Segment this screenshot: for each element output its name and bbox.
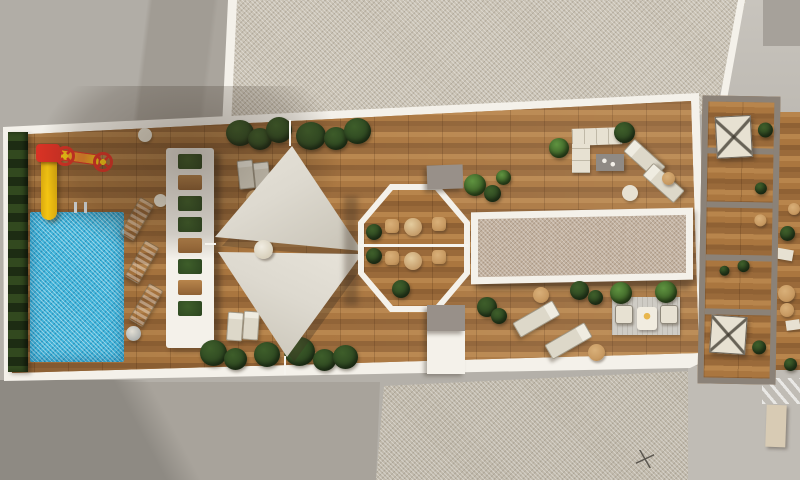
gazebo-chair-4 xyxy=(432,250,446,264)
planter-above-gazebo xyxy=(427,164,464,189)
umbrella-bottom xyxy=(709,315,748,355)
building-topright-block xyxy=(763,0,800,46)
gazebo-beam xyxy=(360,244,468,247)
pouf-upper-deck xyxy=(138,128,152,142)
sofa-l-side xyxy=(572,144,590,173)
roof-topleft-smooth xyxy=(0,0,238,132)
neighbor-chair xyxy=(788,203,800,215)
gazebo-table-1 xyxy=(404,218,422,236)
private-plant-5 xyxy=(752,340,766,354)
private-chair xyxy=(754,214,766,226)
gazebo-plant-2 xyxy=(366,248,382,264)
gazebo-chair-3 xyxy=(432,217,446,231)
private-plant-3 xyxy=(737,260,749,272)
bulkhead-below-gazebo xyxy=(427,330,465,374)
sail-rope-bottom xyxy=(284,356,286,375)
pool-ladder xyxy=(74,202,88,213)
private-terraces-block xyxy=(697,95,780,384)
pergola-opening-wood xyxy=(178,280,202,295)
gazebo-plant-1 xyxy=(366,224,382,240)
sail-rope-top xyxy=(289,120,291,146)
pergola-opening-plant xyxy=(178,259,202,274)
gazebo-shadow xyxy=(344,196,358,306)
corner-pouf xyxy=(588,344,605,361)
bench-bottomright xyxy=(765,405,786,448)
nook-tree-2 xyxy=(655,281,677,303)
pergola-opening-wood xyxy=(178,175,202,190)
plant-below-canopy-2 xyxy=(491,308,507,324)
lounge-plant-2 xyxy=(549,138,569,158)
neighbor-table-1 xyxy=(778,285,795,302)
pergola-opening-plant xyxy=(178,196,202,211)
plant-bottom-6 xyxy=(333,345,358,369)
pergola-opening-wood xyxy=(178,238,202,253)
terrace-divider-2 xyxy=(707,201,773,208)
plant-gazebo-right-2 xyxy=(484,185,501,202)
plant-top-4 xyxy=(296,122,326,150)
sail-center-table xyxy=(254,240,273,259)
pergola-opening-plant xyxy=(178,301,202,316)
private-plant-1 xyxy=(758,122,773,137)
pergola-opening-plant xyxy=(178,217,202,232)
nook-armchair-1 xyxy=(615,305,633,324)
play-wheel-right xyxy=(93,152,113,172)
corner-plant-2 xyxy=(588,290,603,305)
lounge-side-table-2 xyxy=(622,185,638,201)
plant-gazebo-right-1 xyxy=(464,174,486,196)
nook-armchair-2 xyxy=(660,305,678,324)
neighbor-table-2 xyxy=(780,303,794,317)
gazebo-plant-3 xyxy=(392,280,410,298)
pergola-slats xyxy=(166,148,214,348)
antenna-icon xyxy=(636,450,654,468)
play-wheel-left xyxy=(55,146,75,166)
gazebo-floor xyxy=(364,190,464,306)
umbrella-top xyxy=(715,115,753,159)
private-plant-4 xyxy=(719,266,729,276)
coffee-table xyxy=(596,154,624,171)
gazebo-chair-2 xyxy=(385,251,399,265)
roof-bottom-shadow xyxy=(0,380,384,480)
pouf-below-canopy xyxy=(533,287,549,303)
plant-gazebo-right-3 xyxy=(496,170,511,185)
canopy-fabric-roof xyxy=(478,215,686,277)
plant-bottom-3 xyxy=(254,342,280,367)
planter-below-gazebo xyxy=(427,305,465,331)
sail-rope-left xyxy=(205,243,216,245)
plant-top-6 xyxy=(344,118,371,144)
pool-bottom-pouf xyxy=(126,326,141,341)
pergola-opening-plant xyxy=(178,154,202,169)
lounge-side-table-1 xyxy=(662,172,675,185)
swimming-pool xyxy=(30,212,124,362)
corner-plant-1 xyxy=(570,281,589,300)
nook-tree-1 xyxy=(610,282,632,304)
gazebo-chair-1 xyxy=(385,219,399,233)
plant-bottom-2 xyxy=(224,348,247,370)
hedge-left xyxy=(8,132,28,372)
plant-bottom-1 xyxy=(200,340,227,366)
neighbor-plant-2 xyxy=(784,358,797,371)
nook-table xyxy=(637,307,657,330)
deck-lounger-bottom-2 xyxy=(242,310,260,340)
gazebo-table-2 xyxy=(404,252,422,270)
neighbor-cushion-2 xyxy=(785,319,800,331)
private-plant-2 xyxy=(755,182,767,194)
rooftop-aerial-render xyxy=(0,0,800,480)
neighbor-plant-1 xyxy=(780,226,795,241)
